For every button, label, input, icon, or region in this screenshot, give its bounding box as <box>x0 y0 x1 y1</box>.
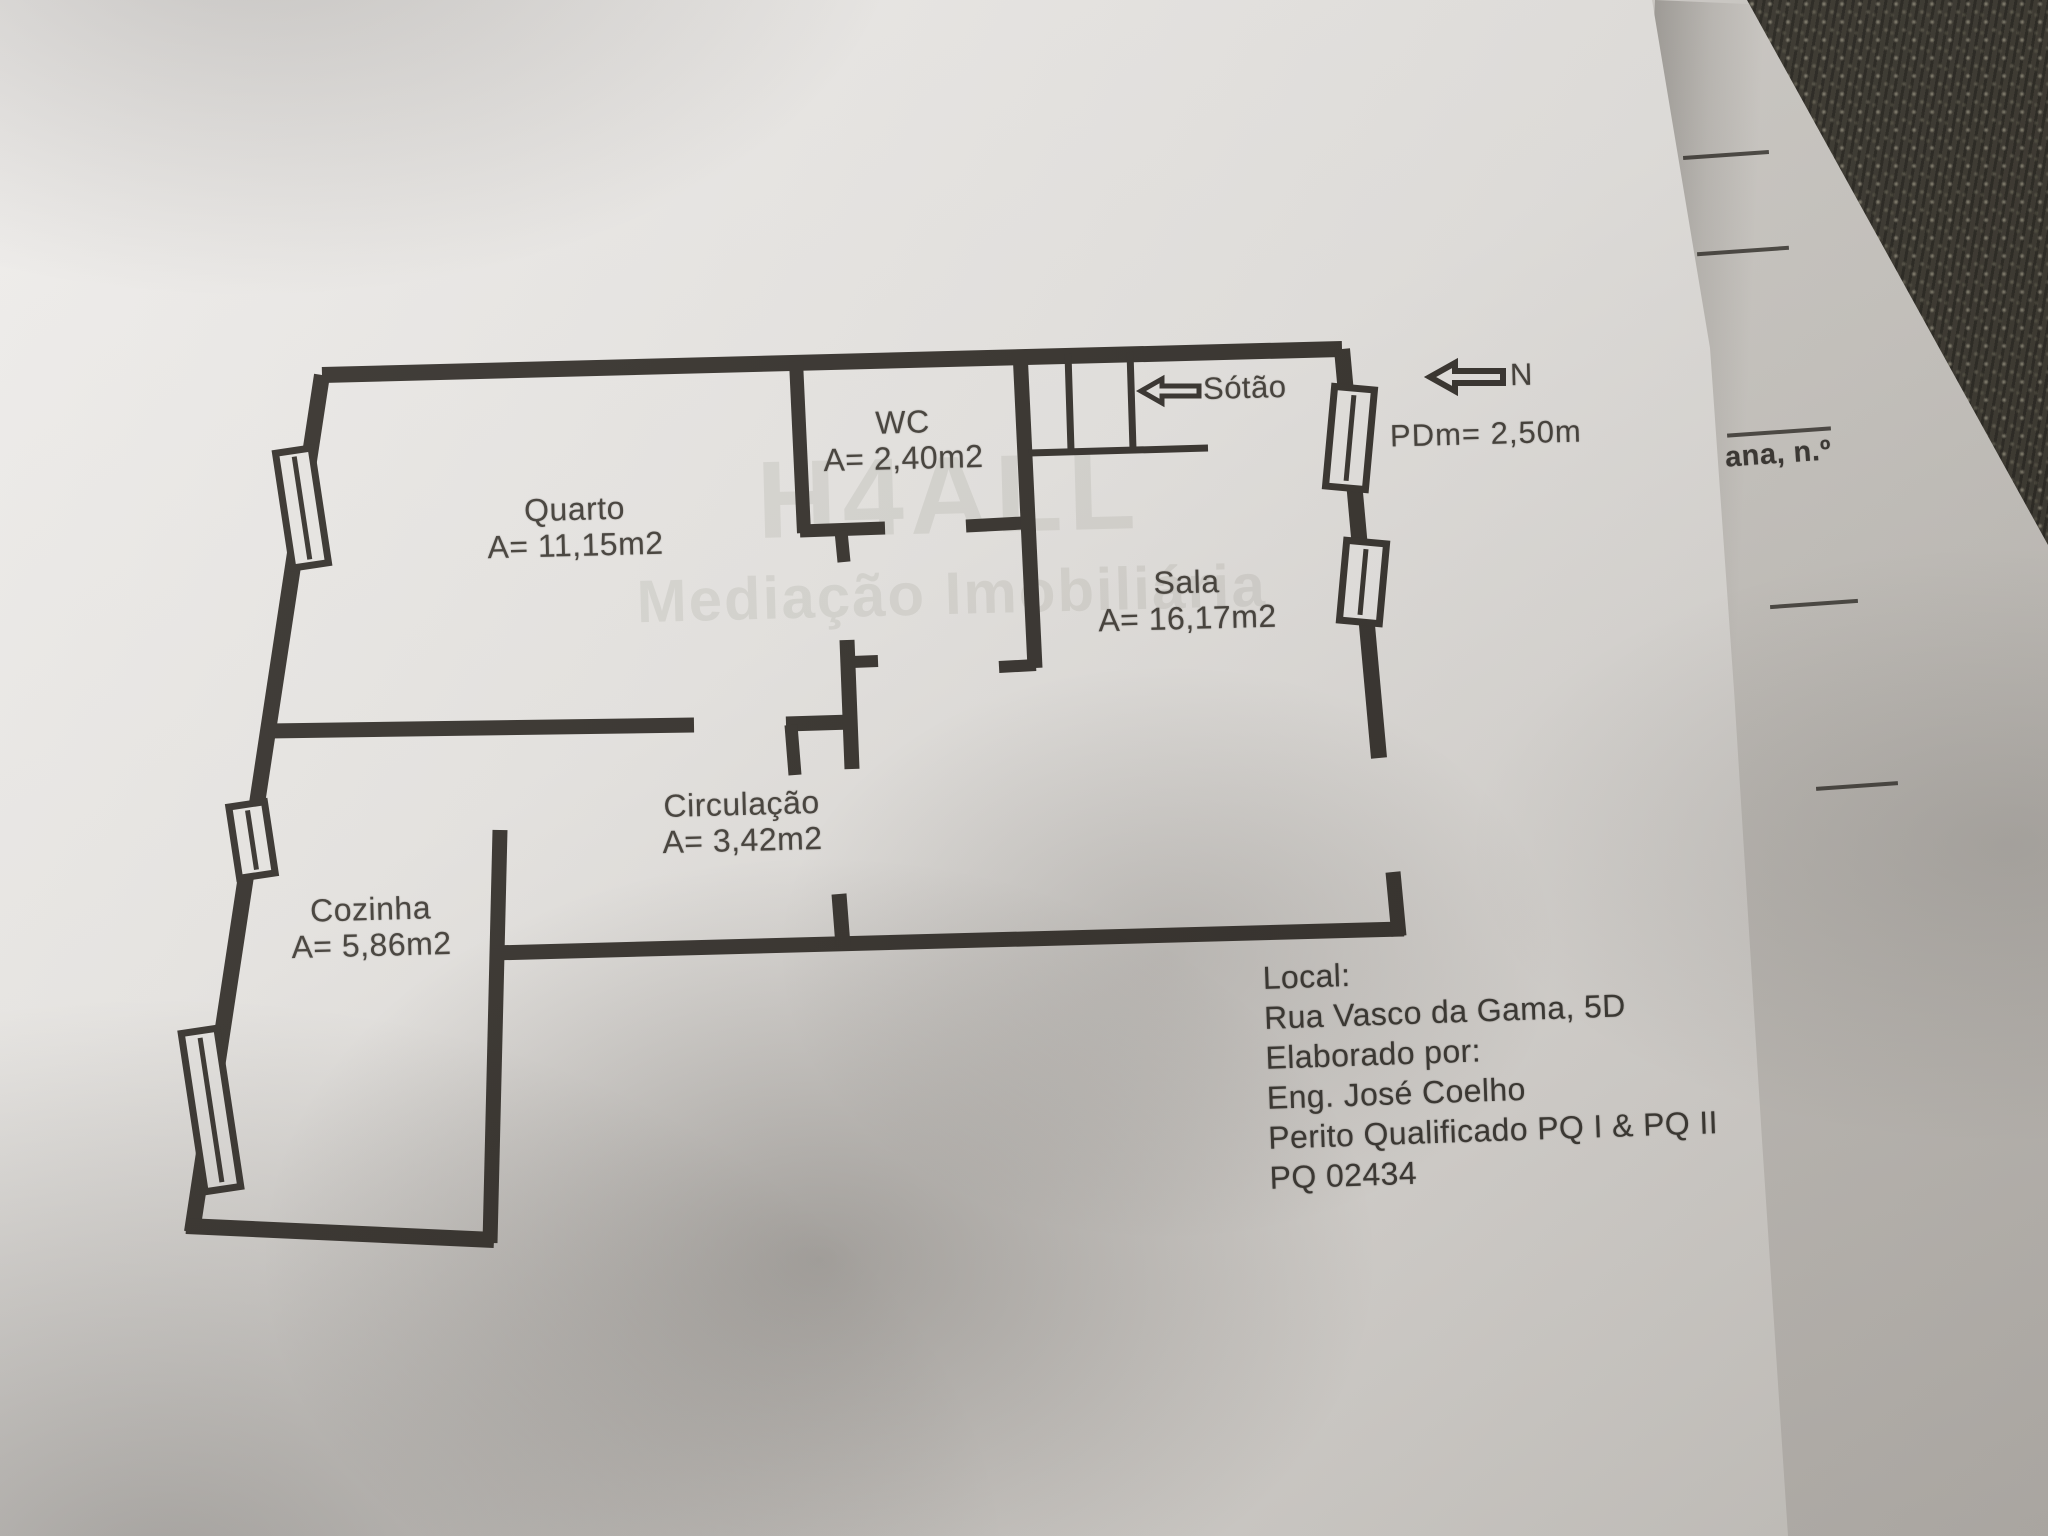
wall-wc-bottom <box>800 528 885 531</box>
wall-quarto-bottom-right <box>786 722 852 724</box>
wall-bottom-right-riser <box>1393 872 1399 936</box>
attic-arrow-icon <box>1141 379 1199 403</box>
wall-quarto-bottom <box>268 725 694 731</box>
stair-tread <box>1068 354 1071 450</box>
window-symbol <box>276 448 329 568</box>
stair-tread <box>1130 352 1133 449</box>
room-label-quarto: Quarto A= 11,15m2 <box>486 489 664 566</box>
room-label-sala: Sala A= 16,17m2 <box>1097 562 1277 639</box>
wall-kitchen-right <box>490 830 500 1243</box>
room-area: A= 16,17m2 <box>1098 598 1277 639</box>
door-jamb <box>852 661 878 662</box>
room-area: A= 11,15m2 <box>487 525 664 566</box>
window-symbol <box>1339 540 1386 623</box>
room-name: Sala <box>1097 562 1276 603</box>
room-label-circulacao: Circulação A= 3,42m2 <box>661 784 823 860</box>
door-jamb <box>841 531 844 562</box>
floor-plan-drawing <box>0 0 2048 1536</box>
ceiling-height-label: PDm= 2,50m <box>1390 413 1583 454</box>
wall-wc-bottom-right <box>966 523 1023 526</box>
wall-bottom-main <box>492 929 1404 953</box>
window-symbol <box>1326 386 1375 489</box>
room-area: A= 5,86m2 <box>291 925 452 965</box>
stairs-icon <box>1029 352 1208 453</box>
room-area: A= 3,42m2 <box>662 820 823 860</box>
north-arrow-icon <box>1430 363 1503 391</box>
wall-hall-column <box>847 640 852 769</box>
info-block: Local: Rua Vasco da Gama, 5D Elaborado p… <box>1262 942 1720 1198</box>
door-jamb <box>999 665 1036 667</box>
room-area: A= 2,40m2 <box>823 438 984 478</box>
wall-bottom-kitchen <box>186 1226 494 1240</box>
window-symbol <box>229 802 275 879</box>
attic-label: Sótão <box>1203 369 1287 407</box>
room-name: Quarto <box>486 489 663 530</box>
room-label-wc: WC A= 2,40m2 <box>822 402 984 478</box>
window-symbol <box>181 1028 241 1192</box>
north-label: N <box>1510 357 1534 394</box>
stair-base <box>1029 448 1208 453</box>
wall-sala-left <box>1020 351 1035 668</box>
room-name: Circulação <box>661 784 822 824</box>
room-name: WC <box>822 402 983 442</box>
room-name: Cozinha <box>290 889 451 929</box>
door-jamb <box>791 725 795 775</box>
photo-of-floor-plan: ana, n.º H4ALL Mediação Imobiliária <box>0 0 2048 1536</box>
door-jamb <box>839 894 843 946</box>
wall-wc-left <box>796 361 804 533</box>
room-label-cozinha: Cozinha A= 5,86m2 <box>290 889 452 965</box>
wall-top <box>322 349 1342 375</box>
